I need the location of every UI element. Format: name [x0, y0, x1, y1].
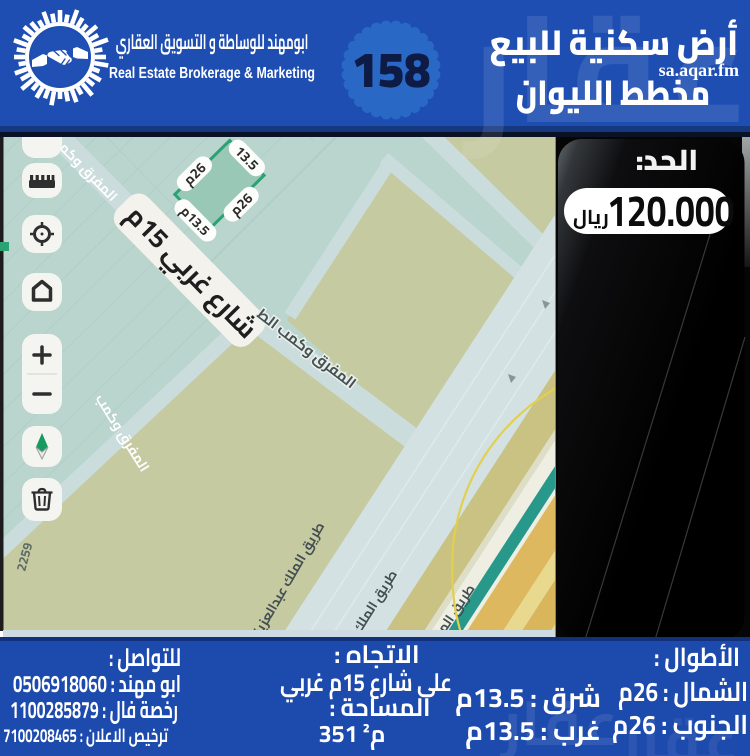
- svg-text:sa.aqar.fm: sa.aqar.fm: [659, 60, 739, 80]
- svg-text:Real Estate Brokerage & Market: Real Estate Brokerage & Marketing: [109, 65, 315, 82]
